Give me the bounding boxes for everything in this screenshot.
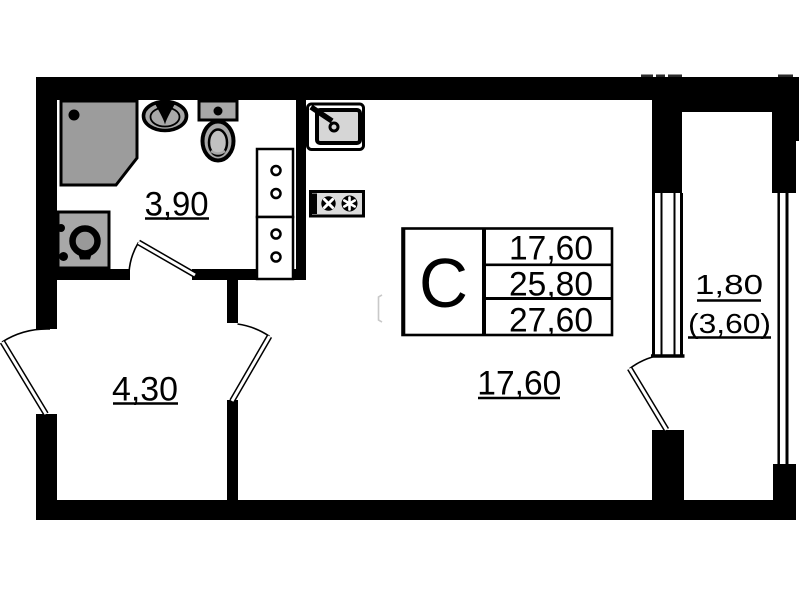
svg-text:(3,60): (3,60) — [688, 308, 771, 339]
svg-text:С: С — [419, 244, 468, 322]
svg-text:1,80: 1,80 — [695, 269, 763, 300]
svg-text:25,80: 25,80 — [509, 266, 593, 304]
svg-text:17,60: 17,60 — [477, 364, 561, 402]
svg-text:17,60: 17,60 — [509, 230, 593, 268]
svg-text:27,60: 27,60 — [509, 302, 593, 340]
